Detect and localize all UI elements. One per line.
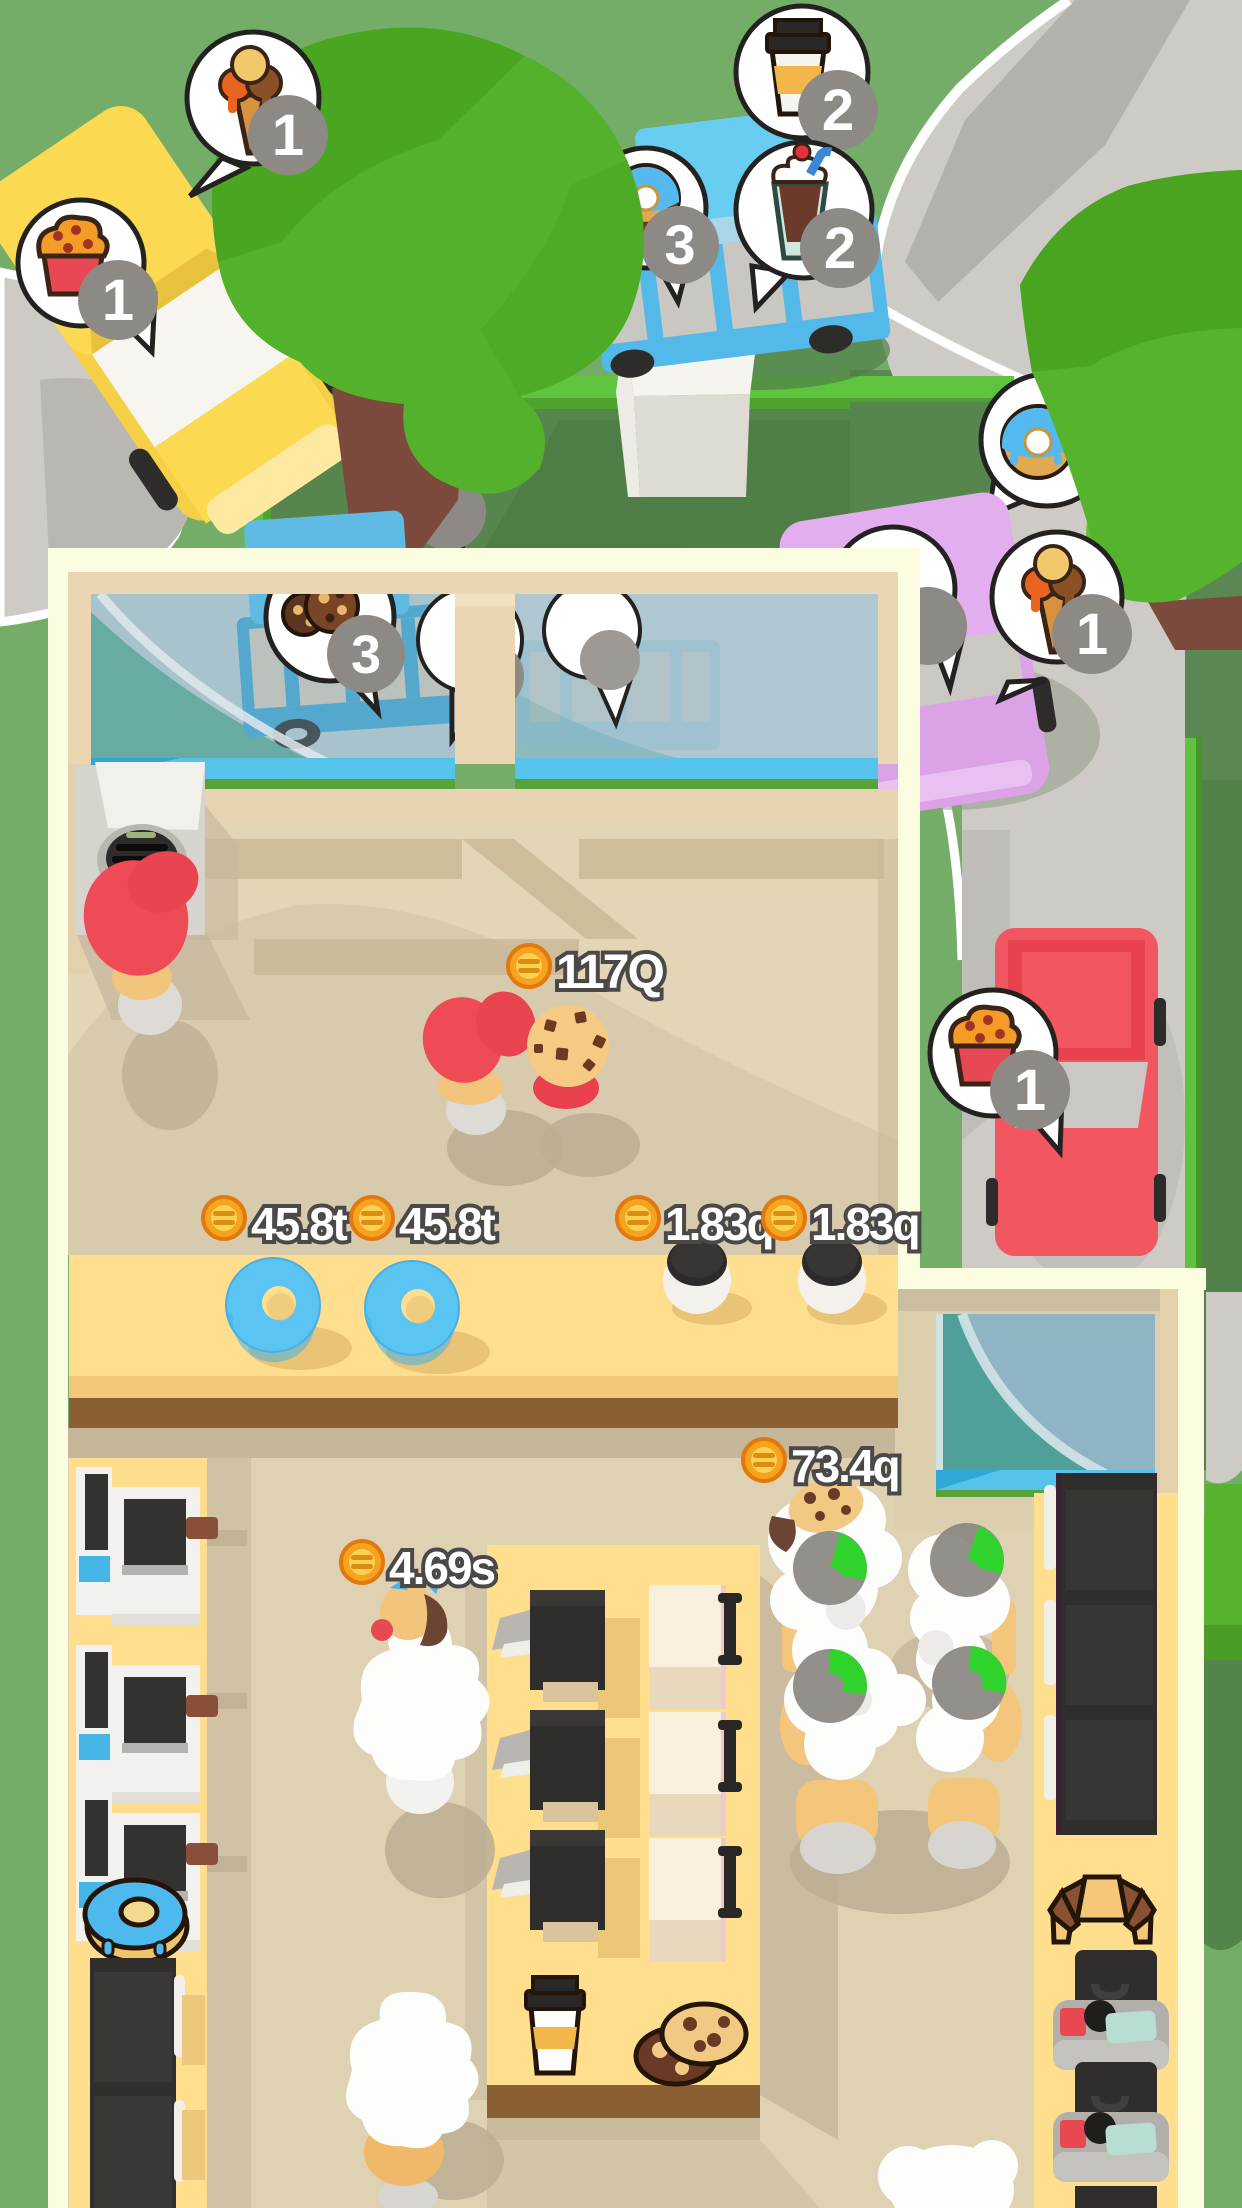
- svg-text:45.8t: 45.8t: [251, 1198, 348, 1250]
- svg-text:1: 1: [272, 103, 304, 168]
- svg-text:1: 1: [102, 268, 134, 333]
- svg-text:3: 3: [351, 625, 381, 685]
- svg-text:1: 1: [1014, 1058, 1046, 1123]
- svg-text:3: 3: [664, 213, 695, 276]
- svg-text:2: 2: [822, 78, 854, 143]
- svg-text:4.69s: 4.69s: [389, 1542, 495, 1594]
- svg-text:1: 1: [1076, 602, 1108, 667]
- svg-text:45.8t: 45.8t: [399, 1198, 496, 1250]
- svg-text:2: 2: [824, 216, 856, 281]
- svg-text:1.83q: 1.83q: [811, 1198, 919, 1250]
- svg-text:117Q: 117Q: [556, 946, 663, 999]
- svg-text:1.83q: 1.83q: [665, 1198, 773, 1250]
- svg-text:73.4q: 73.4q: [791, 1440, 899, 1492]
